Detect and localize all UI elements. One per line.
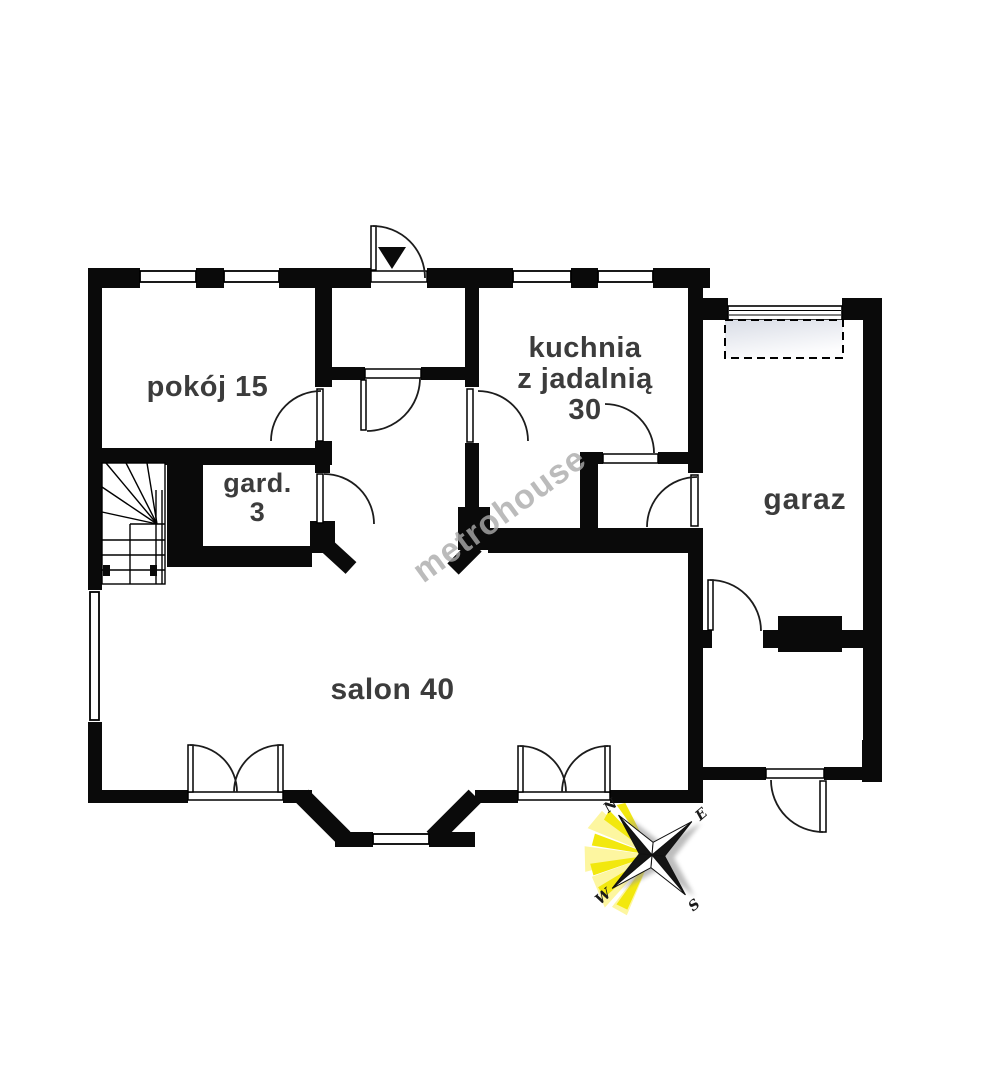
entrance-door-sill	[371, 271, 427, 282]
window-bay	[373, 834, 429, 844]
garage-door-swing-area	[725, 320, 843, 358]
room-label-gard: gard. 3	[200, 469, 315, 527]
garage-corridor-door-arc	[710, 580, 761, 631]
side-exit-door-arc	[771, 780, 823, 832]
room-label-garaz: garaz	[735, 483, 875, 516]
french-door-b-left-arc	[520, 746, 566, 792]
entrance-arrow-icon	[378, 247, 406, 269]
side-exit-door-sill	[766, 769, 824, 778]
garage-corridor-door-leaf	[708, 580, 713, 630]
entrance-door-leaf	[371, 226, 376, 270]
compass-south-label: S	[685, 896, 703, 915]
kitchen-door-leaf	[467, 389, 473, 442]
french-door-b-sill	[518, 792, 610, 800]
pantry-garage-door-arc	[647, 477, 697, 527]
garage-door-panel	[728, 306, 842, 320]
window-kitchen-1	[513, 271, 571, 282]
pokoj-door-leaf	[317, 389, 323, 441]
window-pokoj-1	[140, 271, 196, 282]
vestibule-door-leaf	[361, 380, 366, 430]
french-door-a-left-leaf	[188, 745, 193, 792]
compass-rose: N E S W	[551, 755, 753, 958]
stair-post	[103, 565, 110, 576]
gard-door-arc	[324, 474, 374, 524]
pantry-door-sill	[603, 454, 658, 463]
french-door-a-right-leaf	[278, 745, 283, 792]
garage-door	[725, 306, 843, 358]
french-door-a-left-arc	[190, 745, 237, 792]
pantry-garage-door-leaf	[691, 475, 698, 526]
room-label-kuchnia: kuchnia z jadalnią 30	[495, 333, 675, 426]
vestibule-door-sill	[365, 369, 421, 378]
floorplan-canvas: N E S W pokój 15 kuchnia z jadalnią 30 g…	[0, 0, 996, 1080]
french-door-b-right-leaf	[605, 746, 610, 792]
compass-east-label: E	[692, 805, 711, 825]
window-pokoj-2	[224, 271, 279, 282]
french-door-b-right-arc	[562, 746, 608, 792]
side-exit-door-leaf	[820, 781, 826, 832]
french-door-b-left-leaf	[518, 746, 523, 792]
window-kitchen-2	[598, 271, 653, 282]
french-door-a-sill	[188, 792, 283, 800]
gard-door-leaf	[317, 474, 323, 523]
room-label-salon: salon 40	[305, 673, 480, 706]
room-label-pokoj: pokój 15	[110, 372, 305, 404]
stairs	[102, 463, 165, 584]
stair-post	[150, 565, 157, 576]
french-door-a-right-arc	[234, 745, 281, 792]
window-salon-west	[90, 592, 99, 720]
vestibule-door-arc	[367, 378, 420, 431]
